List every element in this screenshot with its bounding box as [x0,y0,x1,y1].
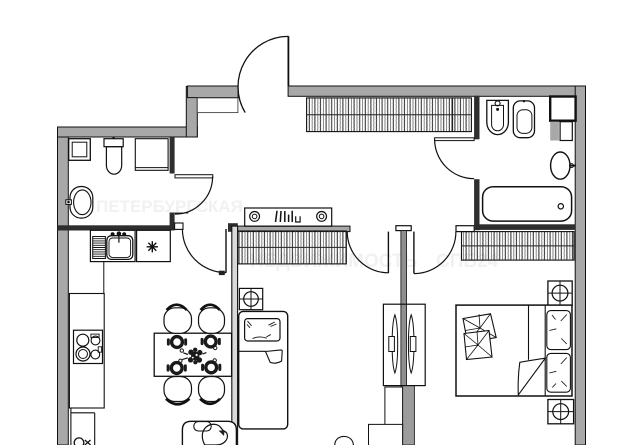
svg-text:ПЕТЕРБУРГСКАЯ: ПЕТЕРБУРГСКАЯ [96,197,243,216]
